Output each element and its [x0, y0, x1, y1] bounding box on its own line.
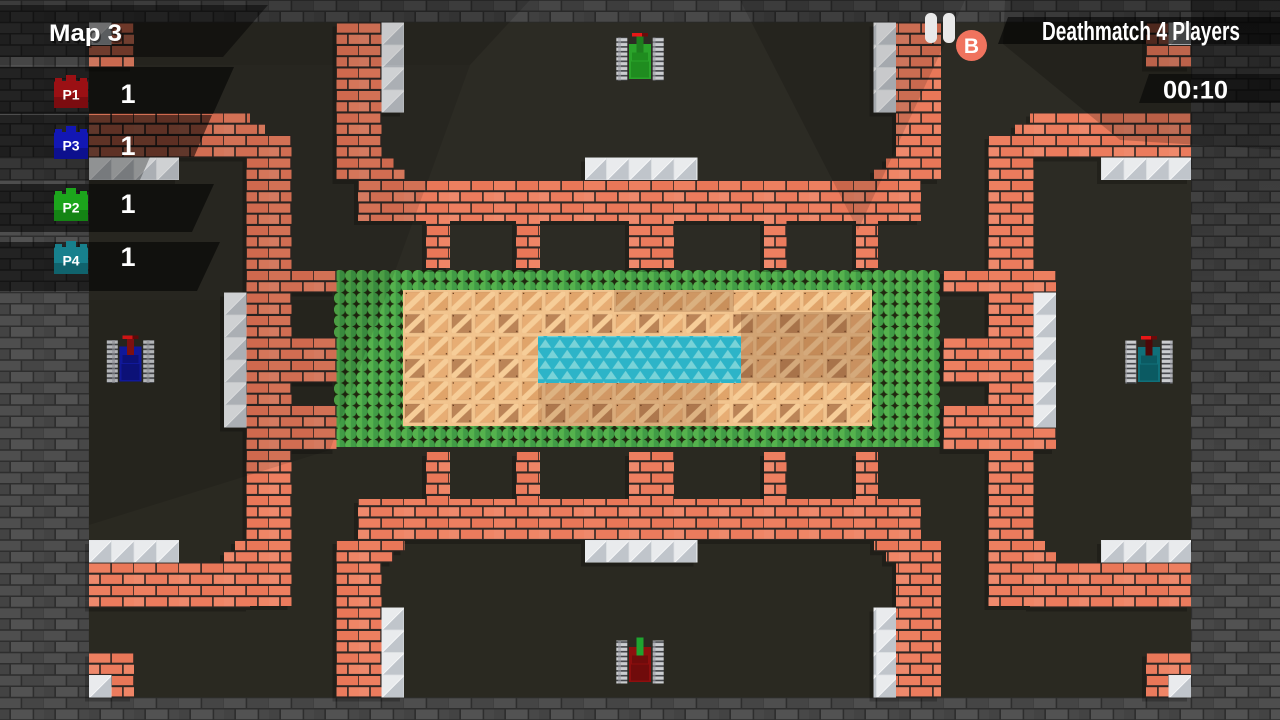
svg-text:1: 1 [121, 189, 136, 219]
svg-text:Deathmatch 4 Players: Deathmatch 4 Players [1042, 18, 1240, 46]
svg-text:Map 3: Map 3 [49, 20, 122, 47]
svg-text:P1: P1 [62, 87, 79, 103]
svg-text:P3: P3 [62, 138, 79, 154]
svg-text:1: 1 [121, 79, 136, 109]
svg-text:1: 1 [121, 242, 136, 272]
svg-text:P2: P2 [62, 200, 79, 216]
svg-text:B: B [964, 35, 979, 58]
svg-text:1: 1 [121, 131, 136, 161]
svg-text:P4: P4 [62, 253, 79, 269]
svg-text:00:10: 00:10 [1163, 77, 1228, 105]
